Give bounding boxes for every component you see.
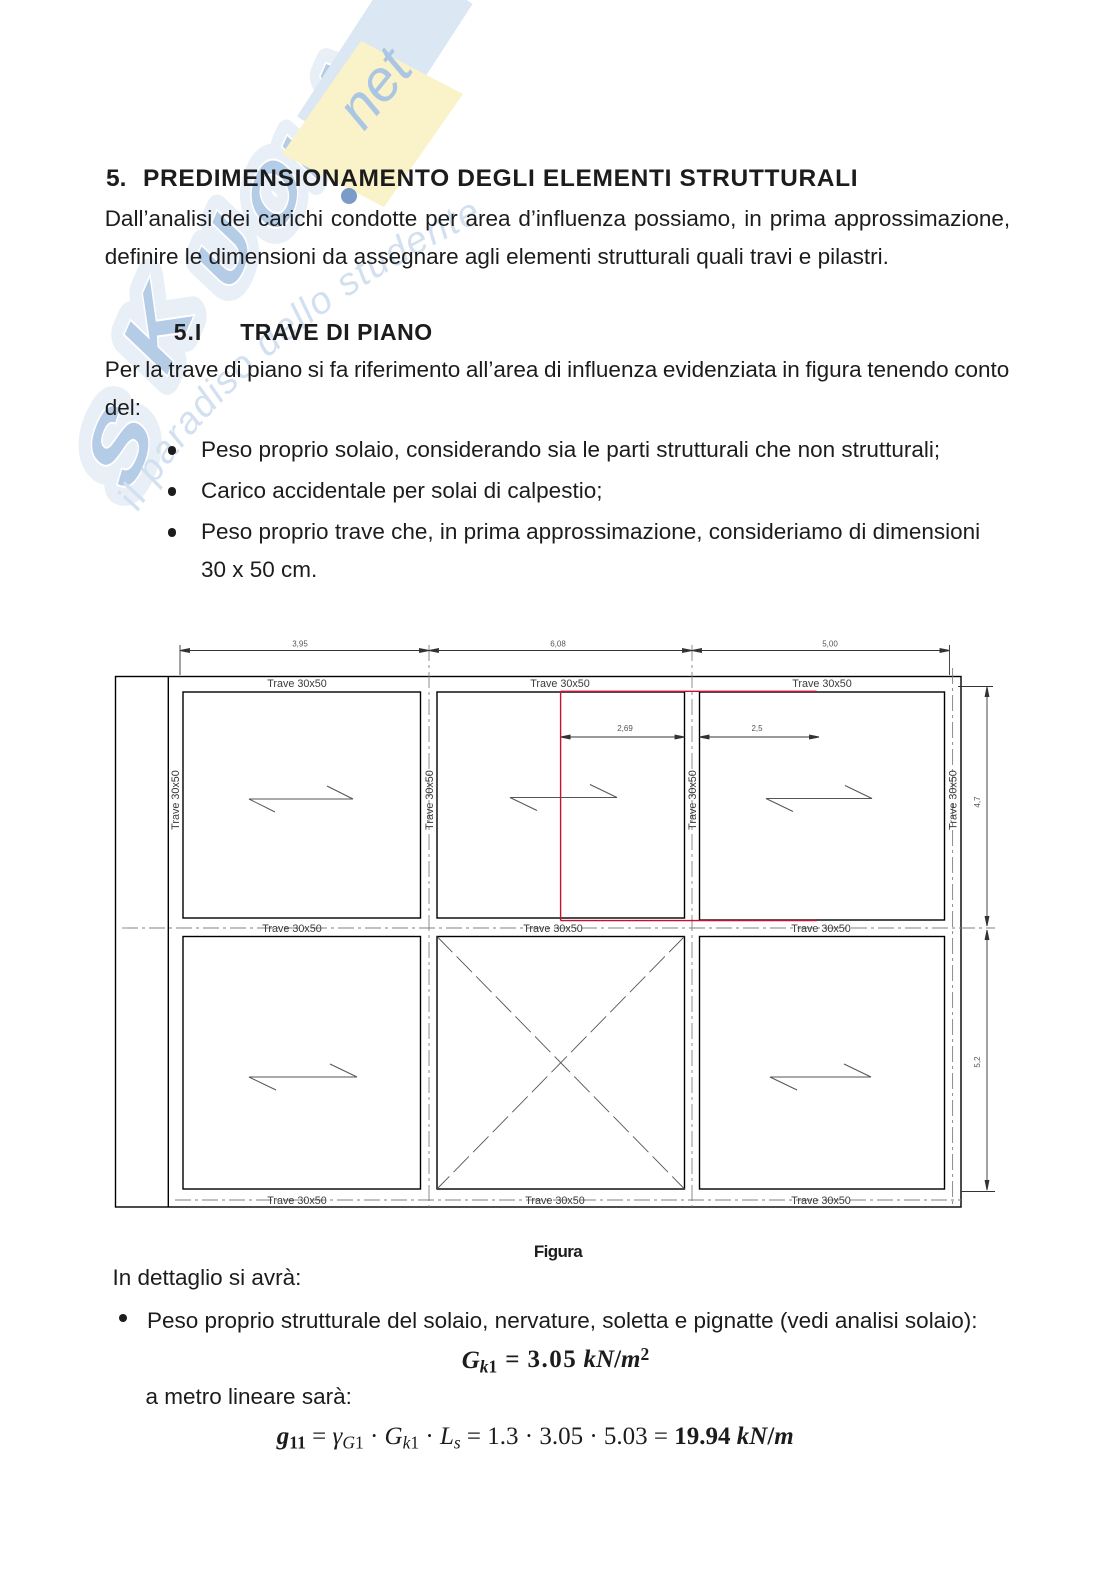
svg-text:Trave 30x50: Trave 30x50 — [424, 770, 436, 830]
svg-text:Trave 30x50: Trave 30x50 — [791, 923, 851, 935]
svg-text:5,00: 5,00 — [822, 640, 838, 649]
svg-text:Trave 30x50: Trave 30x50 — [267, 1195, 327, 1207]
svg-text:5,2: 5,2 — [973, 1056, 982, 1068]
svg-text:4,7: 4,7 — [973, 796, 982, 808]
svg-text:Trave 30x50: Trave 30x50 — [170, 770, 182, 830]
svg-text:3,95: 3,95 — [292, 640, 308, 649]
svg-text:Trave 30x50: Trave 30x50 — [791, 1195, 851, 1207]
svg-text:2,69: 2,69 — [617, 724, 633, 733]
svg-text:Trave 30x50: Trave 30x50 — [792, 678, 852, 690]
svg-text:2,5: 2,5 — [751, 724, 763, 733]
svg-text:Trave 30x50: Trave 30x50 — [267, 678, 327, 690]
svg-text:Trave 30x50: Trave 30x50 — [523, 923, 583, 935]
svg-text:6,08: 6,08 — [550, 640, 566, 649]
svg-text:Trave 30x50: Trave 30x50 — [530, 678, 590, 690]
svg-text:Trave 30x50: Trave 30x50 — [687, 770, 699, 830]
svg-text:Trave 30x50: Trave 30x50 — [525, 1195, 585, 1207]
svg-text:Trave 30x50: Trave 30x50 — [948, 770, 960, 830]
svg-text:Trave 30x50: Trave 30x50 — [262, 923, 322, 935]
